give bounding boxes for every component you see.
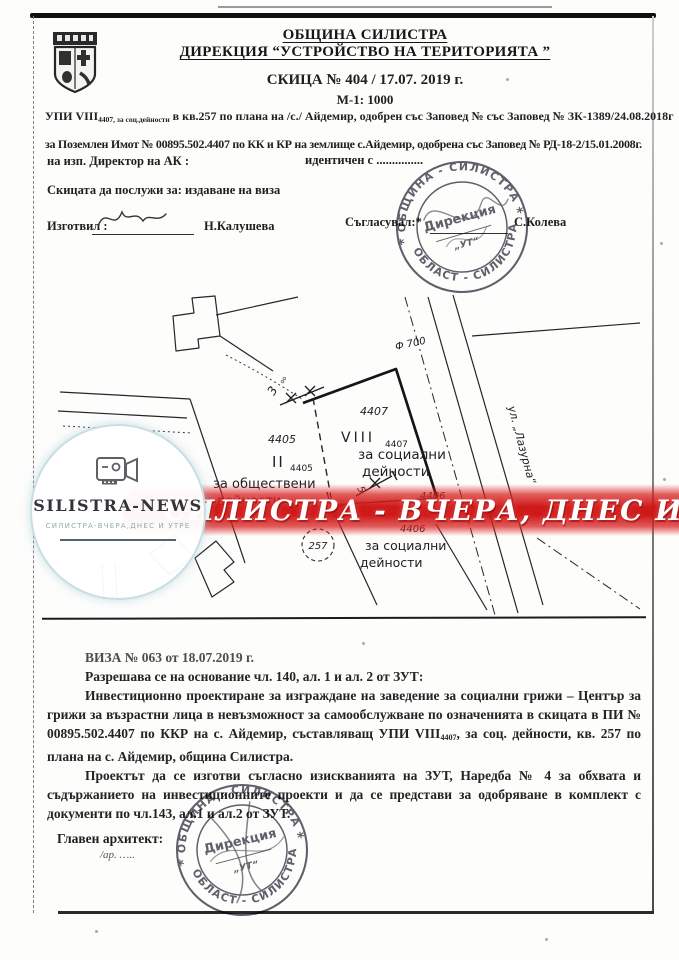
parcel-4407-roman: VIII — [341, 430, 375, 446]
sketch-number: СКИЦА № 404 / 17.07. 2019 г. — [140, 72, 590, 89]
quarter-number: 257 — [308, 541, 328, 552]
parcel-4406-use: за социални — [365, 538, 446, 553]
visa-paragraph-1: Инвестиционно проектиране за изграждане … — [47, 686, 641, 766]
scan-speck — [660, 242, 663, 245]
upi-line: УПИ VIII4407, за соц.дейности в кв.257 п… — [45, 109, 674, 124]
visa-legal-basis-line: Разрешава се на основание чл. 140, ал. 1… — [85, 667, 641, 686]
street-name-label: ул. „Лазурна“ — [505, 403, 539, 485]
silistra-news-logo: SILISTRA-NEWS СИЛИСТРА-ВЧЕРА,ДНЕС И УТРЕ — [30, 424, 206, 600]
page-edge-artifact — [218, 6, 552, 8]
parcel-4407-use: за социални — [358, 447, 446, 463]
chief-architect-label: Главен архитект: — [57, 831, 163, 847]
lane-line — [58, 411, 187, 418]
stamp-center-text: Дирекция — [202, 826, 278, 857]
stamp-department-text: „УТ“ — [231, 859, 259, 876]
stamp-star-left: * — [176, 857, 187, 874]
visa-upi-subscript: 4407 — [440, 733, 456, 742]
prepared-by-underline — [92, 234, 194, 235]
building-outline — [195, 541, 234, 597]
parcel-4405-roman: II — [272, 453, 285, 471]
chief-architect-signature: /ар. ….. — [100, 849, 135, 861]
parcel-4407-number: 4407 — [360, 405, 388, 418]
prepared-by-name: Н.Калушева — [204, 219, 274, 234]
building-outline — [173, 296, 220, 351]
upi-subscript: 4407, за соц.дейности — [98, 115, 170, 124]
upi-rest: в кв.257 по плана на /с./ Айдемир, одобр… — [170, 109, 674, 123]
document-header: ОБЩИНА СИЛИСТРА ДИРЕКЦИЯ “УСТРОЙСТВО НА … — [140, 27, 590, 61]
boundary-line — [220, 336, 273, 371]
frame-bottom-border — [58, 911, 654, 914]
visa-paragraph-2: Проектът да се изготви съгласно изискван… — [47, 766, 641, 823]
prepared-by-signature — [94, 204, 172, 234]
banner-text: СИЛИСТРА - ВЧЕРА, ДНЕС И УТРЕ — [164, 494, 679, 527]
parcel-4406-east-boundary — [436, 524, 487, 610]
video-camera-icon — [95, 452, 141, 488]
scan-speck — [95, 930, 98, 933]
stamp-department-text: „УТ“ — [452, 235, 480, 252]
frame-left-border — [33, 16, 34, 913]
dimension-marks — [280, 386, 324, 405]
parcel-4406-use: дейности — [360, 555, 423, 570]
logo-title: SILISTRA-NEWS — [33, 496, 202, 515]
purpose-line: Скицата да послужи за: издаване на виза — [47, 183, 280, 198]
director-line: на изп. Директор на АК : — [47, 154, 189, 169]
parcel-line: за Поземлен Имот № 00895.502.4407 по КК … — [45, 137, 642, 152]
scan-speck — [362, 642, 365, 645]
lane-line — [60, 392, 190, 399]
visa-number-line: ВИЗА № 063 от 18.07.2019 г. — [85, 648, 641, 667]
logo-subtitle: СИЛИСТРА-ВЧЕРА,ДНЕС И УТРЕ — [46, 522, 191, 530]
pipe-diameter-label: Ф 700 — [394, 336, 426, 353]
dimension-sup: оо — [279, 375, 289, 385]
boundary-line — [216, 297, 298, 315]
scan-speck — [663, 478, 666, 481]
dimension-value: 3 — [264, 384, 280, 398]
logo-divider — [60, 539, 176, 541]
utility-axis-line — [537, 538, 640, 609]
parcel-4405-number: 4405 — [268, 433, 296, 446]
frame-top-border — [30, 13, 656, 18]
org-directorate: ДИРЕКЦИЯ “УСТРОЙСТВО НА ТЕРИТОРИЯТА ” — [140, 44, 590, 61]
dotted-boundary — [226, 355, 302, 399]
boundary-line — [472, 323, 640, 336]
parcel-4407-use: дейности — [362, 464, 430, 480]
upi-prefix: УПИ VIII — [45, 109, 98, 123]
official-round-stamp-bottom: ОБЩИНА - СИЛИСТРА ОБЛАСТ - СИЛИСТРА * * … — [167, 775, 317, 925]
sketch-scale: М-1: 1000 — [140, 92, 590, 108]
official-round-stamp-top: ОБЩИНА - СИЛИСТРА ОБЛАСТ - СИЛИСТРА * * … — [387, 152, 537, 302]
municipality-crest — [50, 30, 100, 96]
stamp-star-left: * — [396, 236, 408, 254]
parcel-4405-roman-sub: 4405 — [290, 464, 313, 474]
scanned-document: { "header": { "org_line1": "ОБЩИНА СИЛИС… — [0, 0, 679, 960]
visa-section: ВИЗА № 063 от 18.07.2019 г. Разрешава се… — [47, 648, 641, 823]
scan-speck — [545, 938, 548, 941]
frame-right-border — [652, 16, 654, 913]
org-name: ОБЩИНА СИЛИСТРА — [140, 27, 590, 44]
